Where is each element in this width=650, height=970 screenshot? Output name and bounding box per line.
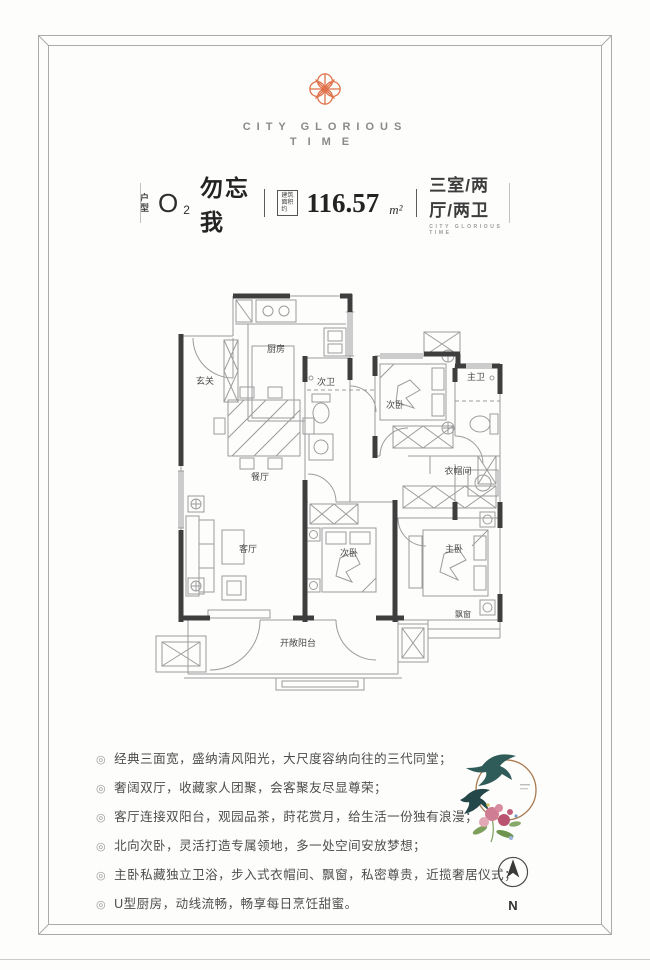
room-label-closet: 衣帽间 <box>444 465 471 476</box>
room-label-dining: 餐厅 <box>251 471 269 482</box>
dining-table <box>214 387 314 469</box>
brand-name: CITY GLORIOUS <box>0 121 650 133</box>
room-label-south-bedroom: 次卧 <box>340 547 358 558</box>
room-label-kitchen: 厨房 <box>267 343 285 354</box>
area-unit: m² <box>389 202 402 218</box>
room-label-master: 主卧 <box>445 543 463 554</box>
layout-rooms: 三室/两厅/两卫 <box>429 171 510 221</box>
unit-title-bar: 户型 O 2 勿忘我 建筑 面积约 116.57 m² 三室/两厅/两卫 CIT… <box>140 183 510 223</box>
title-divider <box>416 189 417 217</box>
feature-text: 奢阔双厅，收藏家人团聚，会客聚友尽显尊荣； <box>114 777 387 796</box>
floor-plan: 玄关 厨房 餐厅 次卫 次卧 主卫 衣帽间 客厅 次卧 主卧 飘窗 开敞阳台 <box>148 286 504 698</box>
feature-item: ◎客厅连接双阳台，观园品茶，莳花赏月，给生活一份独有浪漫； <box>96 806 517 835</box>
unit-type-code: O <box>158 190 178 216</box>
flower-cluster <box>472 803 522 842</box>
unit-type-label: 户型 <box>140 193 149 214</box>
feature-text: 经典三面宽，盛纳清风阳光，大尺度容纳向往的三代同堂； <box>114 748 452 767</box>
bullet-icon: ◎ <box>96 782 106 795</box>
feature-item: ◎主卧私藏独立卫浴，步入式衣帽间、飘窗，私密尊贵，近揽奢居仪式； <box>96 864 517 893</box>
entry-cabinet <box>224 340 238 402</box>
area-note-line1: 建筑 <box>281 193 293 200</box>
area-note-box: 建筑 面积约 <box>277 190 297 217</box>
room-label-living: 客厅 <box>239 543 257 554</box>
swallow-icon <box>460 789 490 814</box>
north-label: N <box>491 898 535 913</box>
north-compass: N <box>491 852 535 913</box>
bullet-icon: ◎ <box>96 811 106 824</box>
room-label-second-bath: 次卫 <box>317 376 335 387</box>
layout-brand-caption: CITY GLORIOUS TIME <box>429 224 510 236</box>
page-bottom-rule <box>0 959 650 960</box>
bullet-icon: ◎ <box>96 869 106 882</box>
brochure-page: CITY GLORIOUS TIME 户型 O 2 勿忘我 建筑 面积约 116… <box>0 0 650 970</box>
area-value: 116.57 <box>307 188 380 219</box>
bullet-icon: ◎ <box>96 753 106 766</box>
feature-item: ◎经典三面宽，盛纳清风阳光，大尺度容纳向往的三代同堂； <box>96 748 517 777</box>
swallows-flowers-illustration <box>458 748 548 853</box>
swallow-icon <box>466 754 516 786</box>
feature-text: U型厨房，动线流畅，畅享每日烹饪甜蜜。 <box>114 893 358 912</box>
closet-wardrobes <box>403 456 496 508</box>
area-note-line2: 面积约 <box>281 200 293 213</box>
room-label-entry: 玄关 <box>196 375 214 386</box>
brand-subname: TIME <box>0 136 650 148</box>
kitchen-fixtures <box>235 300 346 421</box>
feature-item: ◎U型厨房，动线流畅，畅享每日烹饪甜蜜。 <box>96 893 517 922</box>
rosette-flower-icon <box>306 70 344 108</box>
structural-walls <box>181 294 500 622</box>
master-bedroom-furniture <box>409 512 495 615</box>
layout-summary: 三室/两厅/两卫 CITY GLORIOUS TIME <box>429 171 510 236</box>
compass-icon <box>493 852 533 892</box>
title-left-rule <box>140 183 141 223</box>
unit-name: 勿忘我 <box>200 169 251 237</box>
feature-text: 主卧私藏独立卫浴，步入式衣帽间、飘窗，私密尊贵，近揽奢居仪式； <box>114 864 517 883</box>
feature-item: ◎北向次卧，灵活打造专属领地，多一处空间安放梦想； <box>96 835 517 864</box>
title-right-rule <box>509 183 510 223</box>
room-label-master-bath: 主卫 <box>467 371 485 382</box>
title-divider <box>264 189 265 217</box>
unit-type-code-sub: 2 <box>183 203 190 217</box>
bullet-icon: ◎ <box>96 840 106 853</box>
brand-logo: CITY GLORIOUS TIME <box>0 70 650 148</box>
feature-list: ◎经典三面宽，盛纳清风阳光，大尺度容纳向往的三代同堂； ◎奢阔双厅，收藏家人团聚… <box>96 748 517 922</box>
room-label-balcony: 开敞阳台 <box>280 637 316 648</box>
second-bath-fixtures <box>309 394 333 460</box>
room-label-bay-window: 飘窗 <box>455 609 471 619</box>
feature-text: 客厅连接双阳台，观园品茶，莳花赏月，给生活一份独有浪漫； <box>114 806 478 825</box>
room-label-north-bedroom: 次卧 <box>386 399 404 410</box>
bullet-icon: ◎ <box>96 898 106 911</box>
living-room-furniture <box>186 496 270 618</box>
feature-text: 北向次卧，灵活打造专属领地，多一处空间安放梦想； <box>114 835 426 854</box>
feature-item: ◎奢阔双厅，收藏家人团聚，会客聚友尽显尊荣； <box>96 777 517 806</box>
